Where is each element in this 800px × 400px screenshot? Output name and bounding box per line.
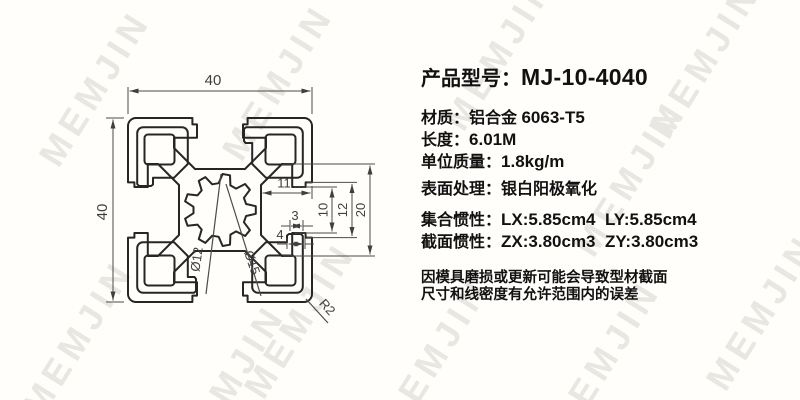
spec-row-moment-inertia: 集合惯性：LX:5.85cm4 LY:5.85cm4 <box>421 209 791 231</box>
leader-core-tip <box>226 184 261 296</box>
spec-panel: 产品型号：MJ-10-4040 材质：铝合金 6063-T5 长度：6.01M … <box>421 62 791 303</box>
dimension-labels: 40 40 11 10 12 20 3 4 Ø12 Ø15 R2 <box>94 72 368 318</box>
dim-cavity-width: 20 <box>353 203 368 217</box>
tolerance-disclaimer: 因模具磨损或更新可能会导致型材截面 尺寸和线密度有允许范围内的误差 <box>421 270 791 303</box>
dim-tab-offset: 3 <box>291 208 298 223</box>
disclaimer-line-2: 尺寸和线密度有允许范围内的误差 <box>421 287 791 304</box>
spec-row-surface: 表面处理：银白阳极氧化 <box>421 178 791 200</box>
dim-core-hole-root: Ø12 <box>187 246 205 272</box>
product-model-row: 产品型号：MJ-10-4040 <box>421 62 791 91</box>
spec-row-section-modulus: 截面惯性：ZX:3.80cm3 ZY:3.80cm3 <box>421 231 791 253</box>
center-gear-hole <box>185 174 256 246</box>
dim-corner-radius: R2 <box>316 296 338 318</box>
product-spec-sheet: MEMJIN MEMJIN MEMJIN MEMJIN MEMJIN MEMJI… <box>0 0 800 400</box>
spec-row-material: 材质：铝合金 6063-T5 <box>421 107 791 129</box>
spec-row-length: 长度：6.01M <box>421 129 791 151</box>
disclaimer-line-1: 因模具磨损或更新可能会导致型材截面 <box>421 270 791 287</box>
dim-slot-depth: 11 <box>277 176 291 191</box>
dim-overall-width: 40 <box>205 72 222 89</box>
dim-lip-span: 12 <box>335 203 350 217</box>
profile-outline <box>128 118 312 302</box>
dim-tab-width: 4 <box>276 227 283 242</box>
dim-core-hole-tip: Ø15 <box>241 248 263 276</box>
product-model-value: MJ-10-4040 <box>521 64 648 90</box>
spec-row-unit-mass: 单位质量：1.8kg/m <box>421 151 791 173</box>
profile-cross-section-drawing: 40 40 11 10 12 20 3 4 Ø12 Ø15 R2 <box>0 0 400 400</box>
dim-slot-opening: 10 <box>316 203 331 217</box>
dim-overall-height: 40 <box>94 204 111 221</box>
leader-core-root <box>206 174 221 294</box>
product-model-label: 产品型号： <box>421 68 521 90</box>
